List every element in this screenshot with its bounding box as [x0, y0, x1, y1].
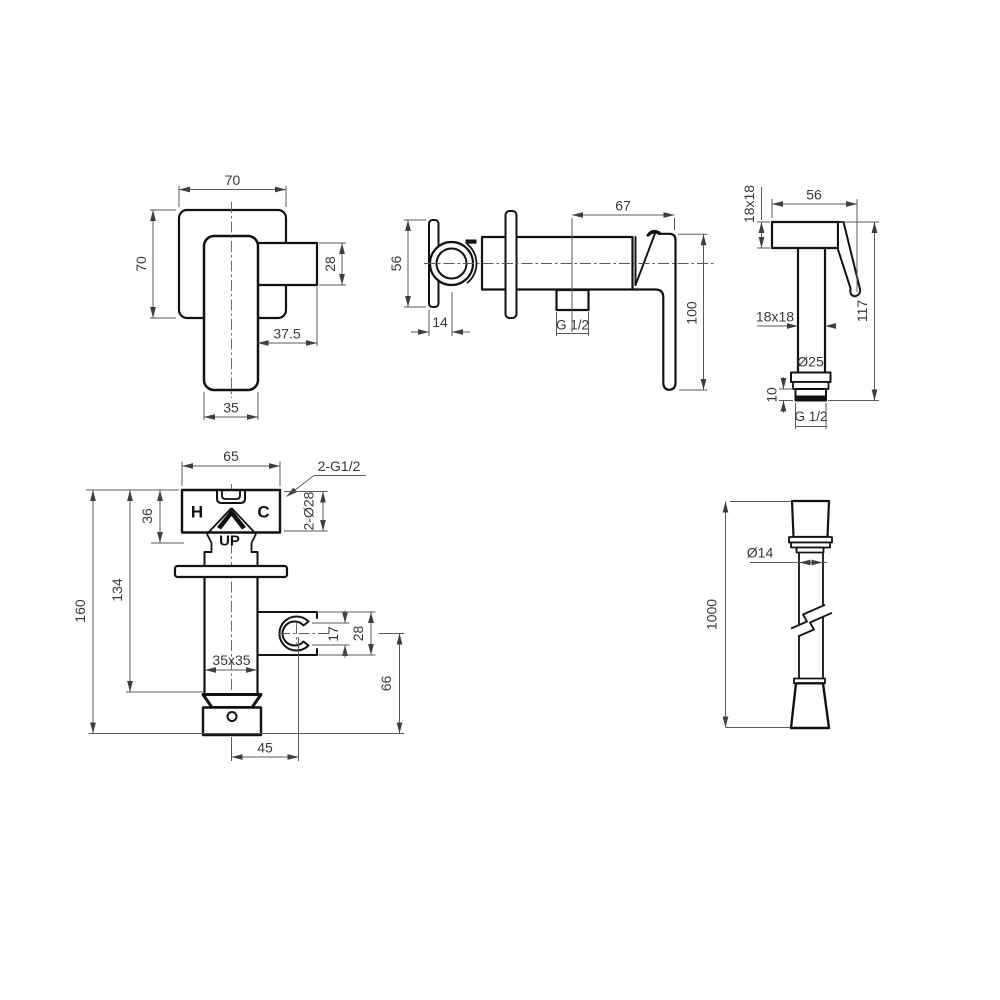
dim-handle-width: 35 [223, 400, 239, 416]
handle-front-view: 70 70 28 37.5 35 [133, 172, 346, 420]
mixer-side-view: 56 14 G 1/2 67 100 [388, 198, 716, 391]
dim-side-height: 70 [133, 256, 149, 272]
dim-holder-offset: 45 [257, 740, 273, 756]
hose-tube-edges [799, 553, 823, 680]
dim-knob-plate-height: 56 [388, 256, 404, 272]
dim-hose-length: 1000 [704, 599, 720, 630]
tube-edges [205, 577, 258, 694]
hose-geometry [789, 501, 832, 728]
dim-holder-height: 28 [350, 626, 366, 642]
dim-clip-opening: 17 [325, 626, 341, 642]
flange-outline [175, 566, 287, 577]
technical-drawing-page: 70 70 28 37.5 35 [0, 0, 1000, 1000]
spout-outline [250, 243, 317, 285]
up-label: UP [219, 533, 240, 550]
dim-spout-length: 37.5 [273, 326, 300, 342]
lever-front-edge [636, 234, 656, 286]
dim-inlet-bores: 2-Ø28 [301, 491, 317, 530]
dim-handle-length: 100 [684, 301, 700, 325]
dim-valve-height: 36 [139, 508, 155, 524]
dim-head-section: 18x18 [741, 185, 757, 223]
dim-center-to-handle: 67 [615, 198, 631, 214]
dim-wall-to-cap: 134 [109, 578, 125, 602]
end-cap-taper [203, 695, 261, 708]
dim-total-height: 117 [854, 300, 870, 323]
dim-knob-offset: 14 [432, 314, 448, 330]
dim-inlet-threads: 2-G1/2 [318, 458, 361, 474]
dim-nut-diameter: Ø25 [797, 354, 824, 370]
dim-body-section: 18x18 [756, 309, 794, 325]
dim-hose-diameter: Ø14 [747, 545, 774, 561]
dim-spout-height: 28 [322, 256, 338, 272]
cold-label: C [257, 503, 269, 522]
wall-escutcheon-outline [506, 211, 517, 318]
dim-total-height: 160 [72, 599, 88, 623]
set-screw-mark [466, 240, 477, 244]
dim-holder-drop: 66 [378, 676, 394, 692]
hose-end-cone [791, 683, 829, 728]
hot-label: H [191, 503, 203, 522]
sprayer-thread-band [796, 396, 826, 401]
mixer-front-view: H C UP 160 134 36 65 2-G1/2 2-Ø28 35x35 [72, 448, 404, 761]
mixer-side-geometry [424, 211, 716, 390]
dim-head-width: 56 [806, 187, 822, 203]
handle-front-geometry [179, 202, 317, 398]
shower-hose-view: 1000 Ø14 [704, 501, 833, 728]
break-line-upper [791, 605, 825, 629]
dim-top-width: 70 [225, 172, 241, 188]
drawing-canvas: 70 70 28 37.5 35 [0, 0, 1000, 1000]
sprayer-nut-upper [791, 373, 831, 383]
hose-collar-top [797, 548, 824, 553]
dim-tube-section: 35x35 [212, 652, 250, 668]
sprayer-head-outline [772, 222, 838, 248]
lever-handle-outline [204, 236, 258, 390]
lever-handle-profile [633, 234, 676, 390]
dim-body-width: 65 [223, 448, 239, 464]
hand-sprayer-view: 18x18 56 117 18x18 Ø25 10 G 1/2 [741, 185, 879, 429]
dim-inlet-thread: G 1/2 [794, 409, 827, 424]
dim-thread-length: 10 [764, 387, 780, 403]
upper-tube-edges [205, 552, 258, 566]
hose-top-connector [792, 501, 829, 537]
sprayer-nut-lower [793, 382, 829, 389]
holder-centerlines [279, 623, 330, 644]
